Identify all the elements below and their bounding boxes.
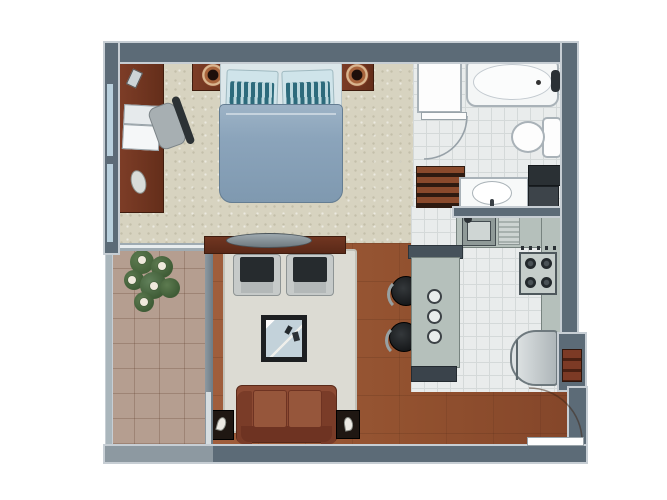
window-left-lower	[107, 164, 113, 242]
balcony-railing	[106, 251, 112, 458]
island-bottom-mat	[411, 366, 457, 382]
burner	[525, 258, 536, 269]
floor-plan	[0, 0, 667, 500]
sofa-back	[241, 426, 332, 442]
armchair-cushion	[240, 257, 274, 282]
closet	[417, 60, 462, 113]
bathtub-drain	[536, 80, 541, 85]
wall-right-step	[559, 334, 585, 390]
remote	[292, 331, 300, 341]
sofa-cushion	[288, 390, 322, 428]
armchair-left	[233, 254, 281, 296]
balcony-sliding-door	[206, 392, 211, 444]
flower	[150, 282, 158, 290]
wall-top	[105, 43, 577, 62]
armchair-cushion	[293, 257, 327, 282]
linen-shelves	[416, 166, 465, 208]
island-counter	[411, 257, 460, 368]
island-knob	[427, 329, 442, 344]
toilet-tank	[542, 117, 562, 158]
table-lamp-icon	[343, 416, 354, 431]
kitchen-sink	[462, 216, 496, 246]
sofa-cushion	[253, 390, 287, 428]
wall-bottom-balcony-segment	[105, 446, 213, 462]
flower	[128, 276, 136, 284]
potted-plant	[124, 248, 182, 314]
wall-right-upper	[562, 43, 577, 336]
island-knob	[427, 309, 442, 324]
shoe-cabinet	[562, 349, 582, 382]
bath-faucet-icon	[551, 70, 560, 92]
wall-bottom	[105, 446, 586, 462]
bath-kitchen-wall	[454, 208, 563, 216]
island-knob	[427, 289, 442, 304]
side-table-right	[336, 410, 360, 439]
burner	[541, 277, 552, 288]
burner	[525, 277, 536, 288]
balcony-glass-wall	[112, 243, 206, 251]
tv	[226, 233, 312, 248]
wall-left	[105, 43, 118, 253]
speaker-right-icon	[345, 63, 369, 87]
coffee-table	[261, 315, 307, 362]
basin-faucet-icon	[490, 199, 494, 208]
kitchen-sink-basin	[467, 221, 491, 241]
laundry-unit-lower	[528, 186, 559, 208]
gas-cooktop	[519, 252, 557, 295]
flower	[158, 262, 166, 270]
kitchen-faucet-icon	[464, 215, 472, 223]
burner	[541, 258, 552, 269]
foliage	[160, 278, 180, 298]
armchair-seat	[294, 282, 326, 293]
armchair-seat	[241, 282, 273, 293]
bed-duvet	[219, 104, 343, 203]
fridge-handle	[516, 340, 518, 380]
bathroom-door	[421, 112, 467, 120]
cooktop-knobs	[521, 246, 558, 250]
nightstand-right	[338, 57, 374, 91]
window-left-upper	[107, 84, 113, 156]
bathroom-vanity	[459, 177, 529, 208]
table-lamp-icon	[215, 416, 227, 432]
drainboard	[498, 217, 520, 245]
flower	[138, 256, 146, 264]
entry-door	[527, 437, 584, 446]
refrigerator	[510, 330, 558, 386]
toilet-bowl	[511, 121, 545, 153]
flower	[140, 298, 148, 306]
armchair-right	[286, 254, 334, 296]
bathtub	[466, 57, 559, 107]
sofa	[236, 385, 337, 443]
laundry-unit	[528, 165, 563, 186]
